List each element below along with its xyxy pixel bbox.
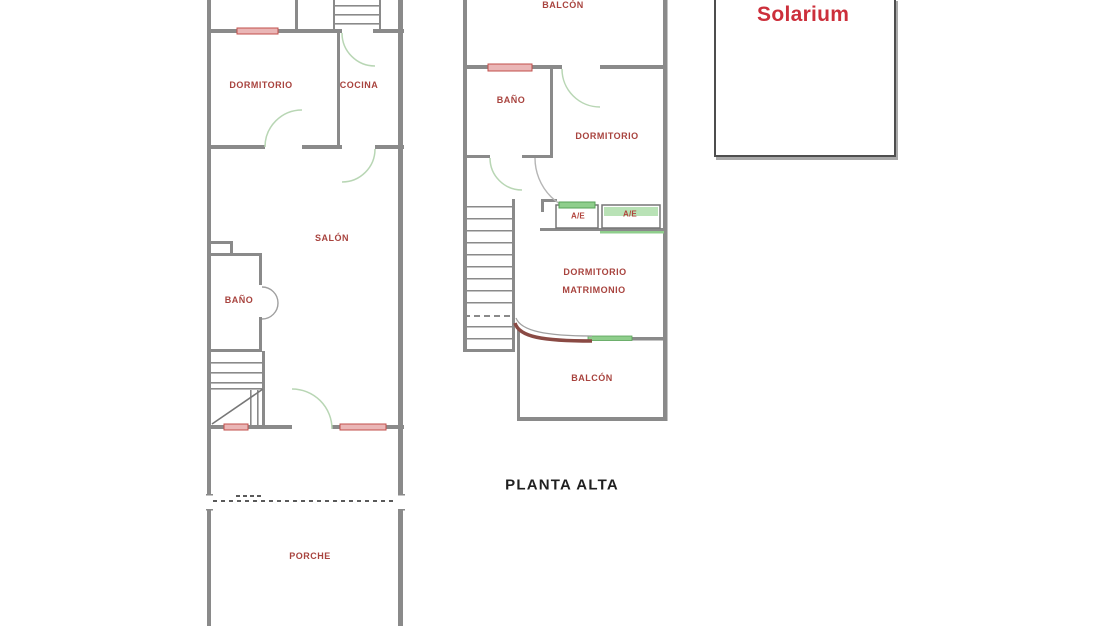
ground-floor-walls	[207, 0, 404, 626]
room-label-dormitorio-matrimonio-line1: DORMITORIO	[563, 267, 626, 277]
room-label-bano-uf: BAÑO	[497, 95, 526, 105]
ground-floor-door-arcs	[265, 33, 375, 429]
door-arc	[490, 158, 522, 190]
window-marker	[237, 28, 278, 34]
ground-floor-stair-diagonal	[212, 389, 263, 424]
ae-unit-label-1: A/E	[571, 212, 585, 221]
solarium-label: Solarium	[757, 3, 849, 27]
window-marker-green	[588, 336, 632, 341]
ae-green-strip	[600, 231, 664, 234]
window-marker	[488, 64, 532, 71]
door-arc	[292, 389, 332, 429]
room-label-balcon-bottom: BALCÓN	[571, 373, 613, 383]
door-arc	[262, 287, 278, 319]
floorplan-canvas: DORMITORIO COCINA SALÓN BAÑO PORCHE BALC…	[0, 0, 1110, 626]
ae-green-strip	[559, 202, 595, 208]
window-marker	[224, 424, 248, 430]
solarium-box: Solarium	[714, 0, 896, 157]
door-arc	[265, 110, 302, 147]
room-label-dormitorio-gf: DORMITORIO	[229, 80, 292, 90]
plan-title: PLANTA ALTA	[505, 477, 619, 494]
room-label-dormitorio-matrimonio-line2: MATRIMONIO	[562, 285, 625, 295]
door-arc	[342, 33, 375, 66]
room-label-salon: SALÓN	[315, 233, 349, 243]
door-arc	[562, 69, 600, 107]
room-label-balcon-top: BALCÓN	[542, 0, 584, 10]
ae-unit-label-2: A/E	[623, 210, 637, 219]
window-marker	[340, 424, 386, 430]
door-arc	[342, 149, 375, 182]
room-label-dormitorio-uf: DORMITORIO	[575, 131, 638, 141]
room-label-cocina: COCINA	[340, 80, 379, 90]
curved-wall	[515, 318, 592, 341]
porch-dashed-line	[205, 494, 405, 511]
room-label-porche: PORCHE	[289, 551, 331, 561]
floorplan-linework	[0, 0, 1110, 626]
room-label-bano-gf: BAÑO	[225, 295, 254, 305]
ground-floor-bath-door	[262, 287, 278, 319]
upper-floor-door-arcs	[490, 69, 600, 190]
